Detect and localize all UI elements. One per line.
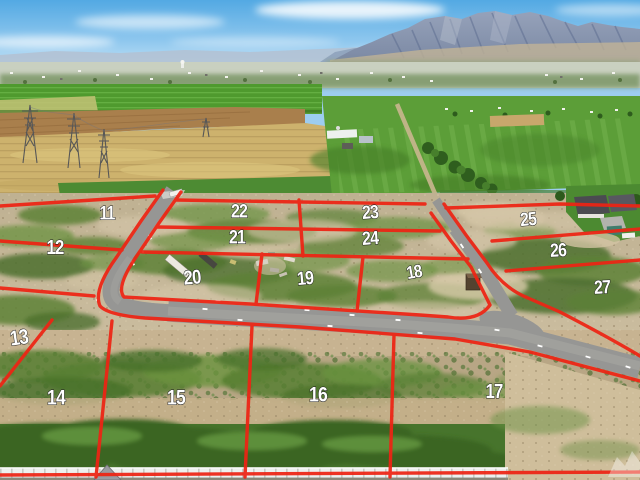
lot-label-12: 12 [47,236,65,259]
lot-label-23: 23 [361,201,380,224]
lot-label-27: 27 [593,276,610,298]
lot-label-22: 22 [231,200,248,222]
lot-label-14: 14 [47,386,66,410]
aerial-photo-canvas: 1112131415161718192021222324252627 [0,0,640,480]
horizon-town-band [0,60,640,88]
rv-trailer [622,233,635,239]
lot-label-26: 26 [549,239,567,262]
lot-label-21: 21 [229,226,246,248]
lot-label-20: 20 [183,265,203,289]
aerial-lot-photo: 1112131415161718192021222324252627 [0,0,640,480]
lot-label-11: 11 [99,202,115,224]
lot-label-15: 15 [167,386,186,410]
riding-arena [490,114,544,127]
lot-label-24: 24 [361,227,380,250]
lot-label-19: 19 [296,266,315,289]
water-tower [181,60,185,68]
lot-label-25: 25 [519,207,538,230]
pastures-right [310,96,640,196]
lot-label-17: 17 [486,380,504,403]
house-roof [608,194,637,212]
lot-label-16: 16 [309,383,328,407]
